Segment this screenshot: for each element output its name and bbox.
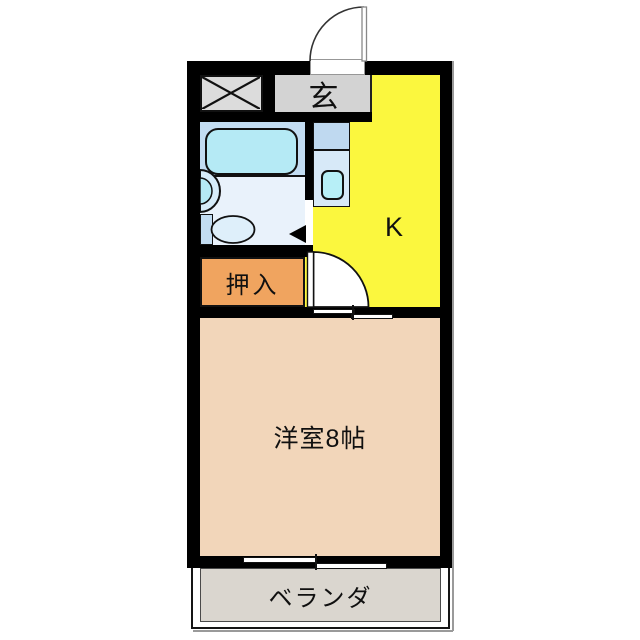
toilet-icon xyxy=(209,214,257,245)
shaft-cross-icon xyxy=(202,77,260,109)
kitchen-door-arc-icon xyxy=(305,249,372,309)
veranda-label: ベランダ xyxy=(200,568,441,622)
wall-bath-bottom xyxy=(187,245,313,257)
shaft-box xyxy=(200,75,263,112)
door-direction-triangle-icon xyxy=(288,224,307,244)
floorplan: 玄 K 押入 洋室8帖 ベランダ xyxy=(0,0,640,640)
plan-bottom-edge xyxy=(193,630,453,632)
sliding-window-icon xyxy=(243,557,317,563)
wall-bath-right xyxy=(305,122,313,200)
floorplan-page: { "floorplan": { "type": "1K apartment f… xyxy=(0,0,640,640)
wall-top-left xyxy=(187,61,310,75)
wall-genkan-bottom xyxy=(187,112,372,122)
sliding-door-icon xyxy=(313,309,355,315)
sink-icon xyxy=(199,169,226,214)
kitchen-counter xyxy=(313,122,350,207)
closet-label: 押入 xyxy=(200,257,305,307)
genkan-label: 玄 xyxy=(275,75,372,112)
entrance-door-arc-icon xyxy=(305,4,371,64)
western-room-label: 洋室8帖 xyxy=(200,318,440,556)
kitchen-sink-icon xyxy=(321,170,344,200)
kitchen-counter-top xyxy=(314,123,349,151)
kitchen-label: K xyxy=(370,206,418,248)
plan-right-edge xyxy=(452,61,454,631)
bathtub-icon xyxy=(205,128,298,175)
